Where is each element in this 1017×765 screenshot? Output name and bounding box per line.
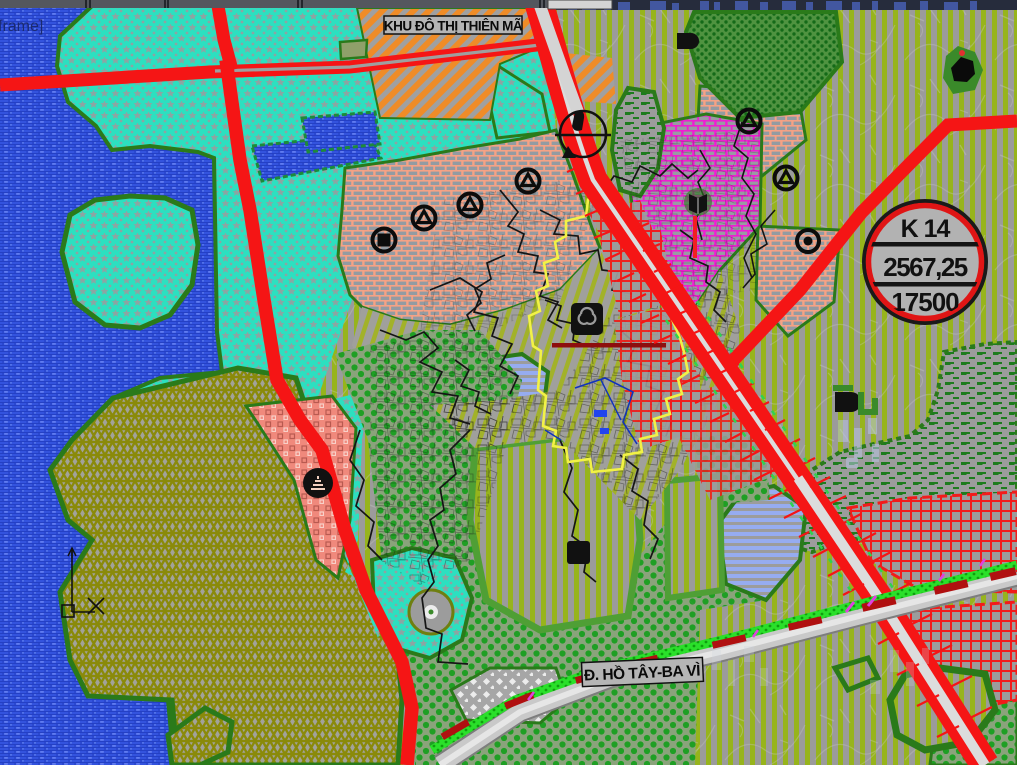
svg-text:frame]: frame] xyxy=(0,18,43,35)
svg-text:KHU ĐÔ THỊ THIÊN MÃ: KHU ĐÔ THỊ THIÊN MÃ xyxy=(384,19,523,34)
svg-text:17500: 17500 xyxy=(891,287,959,317)
svg-text:K 14: K 14 xyxy=(901,215,951,243)
svg-text:2567,25: 2567,25 xyxy=(883,252,968,282)
